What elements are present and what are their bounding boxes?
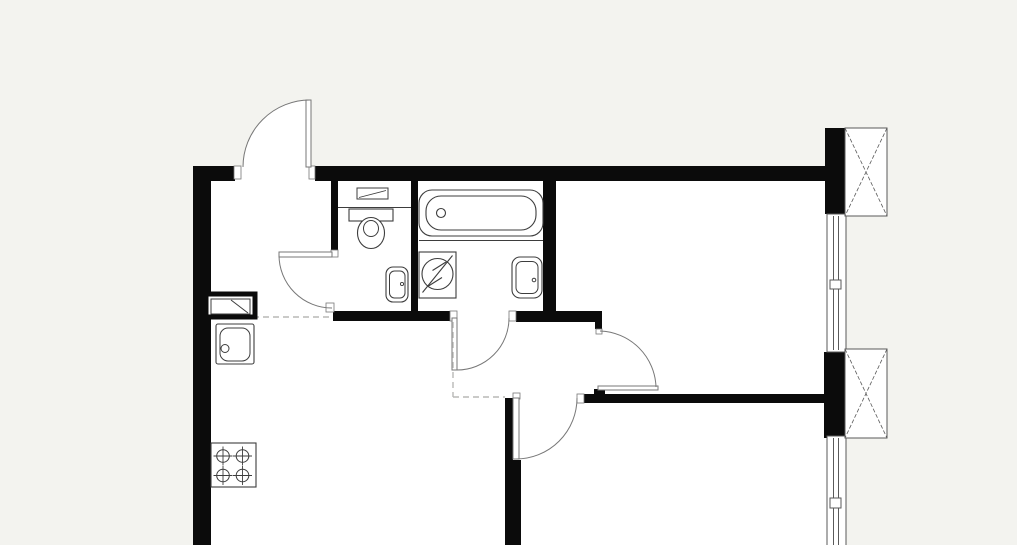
floor-plan	[0, 0, 1017, 545]
ventilation-shafts	[845, 128, 887, 438]
wall-wc-bath-shared	[411, 181, 418, 311]
floor-plan-canvas	[0, 0, 1017, 545]
toilet-bowl	[358, 218, 385, 249]
wc-door-leaf	[279, 252, 332, 257]
fixture-bathtub	[419, 190, 543, 241]
wall-center-upper	[505, 398, 513, 460]
wall-rooms-divider	[584, 394, 828, 403]
jamb-room2-right	[577, 394, 584, 403]
wall-top-left-segment	[193, 166, 235, 181]
fixture-bath-sink	[512, 257, 542, 298]
jamb-bath-right	[509, 311, 516, 321]
entrance-door-swing-area	[243, 100, 310, 167]
window-2-frame	[827, 436, 846, 545]
jamb-entrance-right	[309, 166, 315, 179]
wall-left-exterior	[193, 166, 211, 545]
wall-wc-bottom	[333, 311, 452, 321]
wall-door-pier	[595, 322, 602, 329]
wall-wc-left	[331, 181, 338, 250]
entrance-door-leaf	[306, 100, 311, 167]
window-1-mullion	[830, 280, 841, 289]
window-2-mullion	[830, 498, 841, 508]
wall-top-main	[315, 166, 828, 181]
room1-door-leaf	[598, 386, 658, 390]
wall-pier-upper-right	[825, 128, 845, 214]
wc-shelf	[357, 188, 388, 199]
wall-bath-right	[543, 181, 556, 313]
stove-outline	[211, 443, 256, 487]
wall-bath-bottom-east	[516, 311, 602, 322]
room2-door-leaf	[513, 398, 519, 459]
jamb-entrance-left	[234, 166, 241, 179]
wall-center-lower	[505, 460, 521, 545]
fixture-washing-machine	[419, 252, 456, 298]
